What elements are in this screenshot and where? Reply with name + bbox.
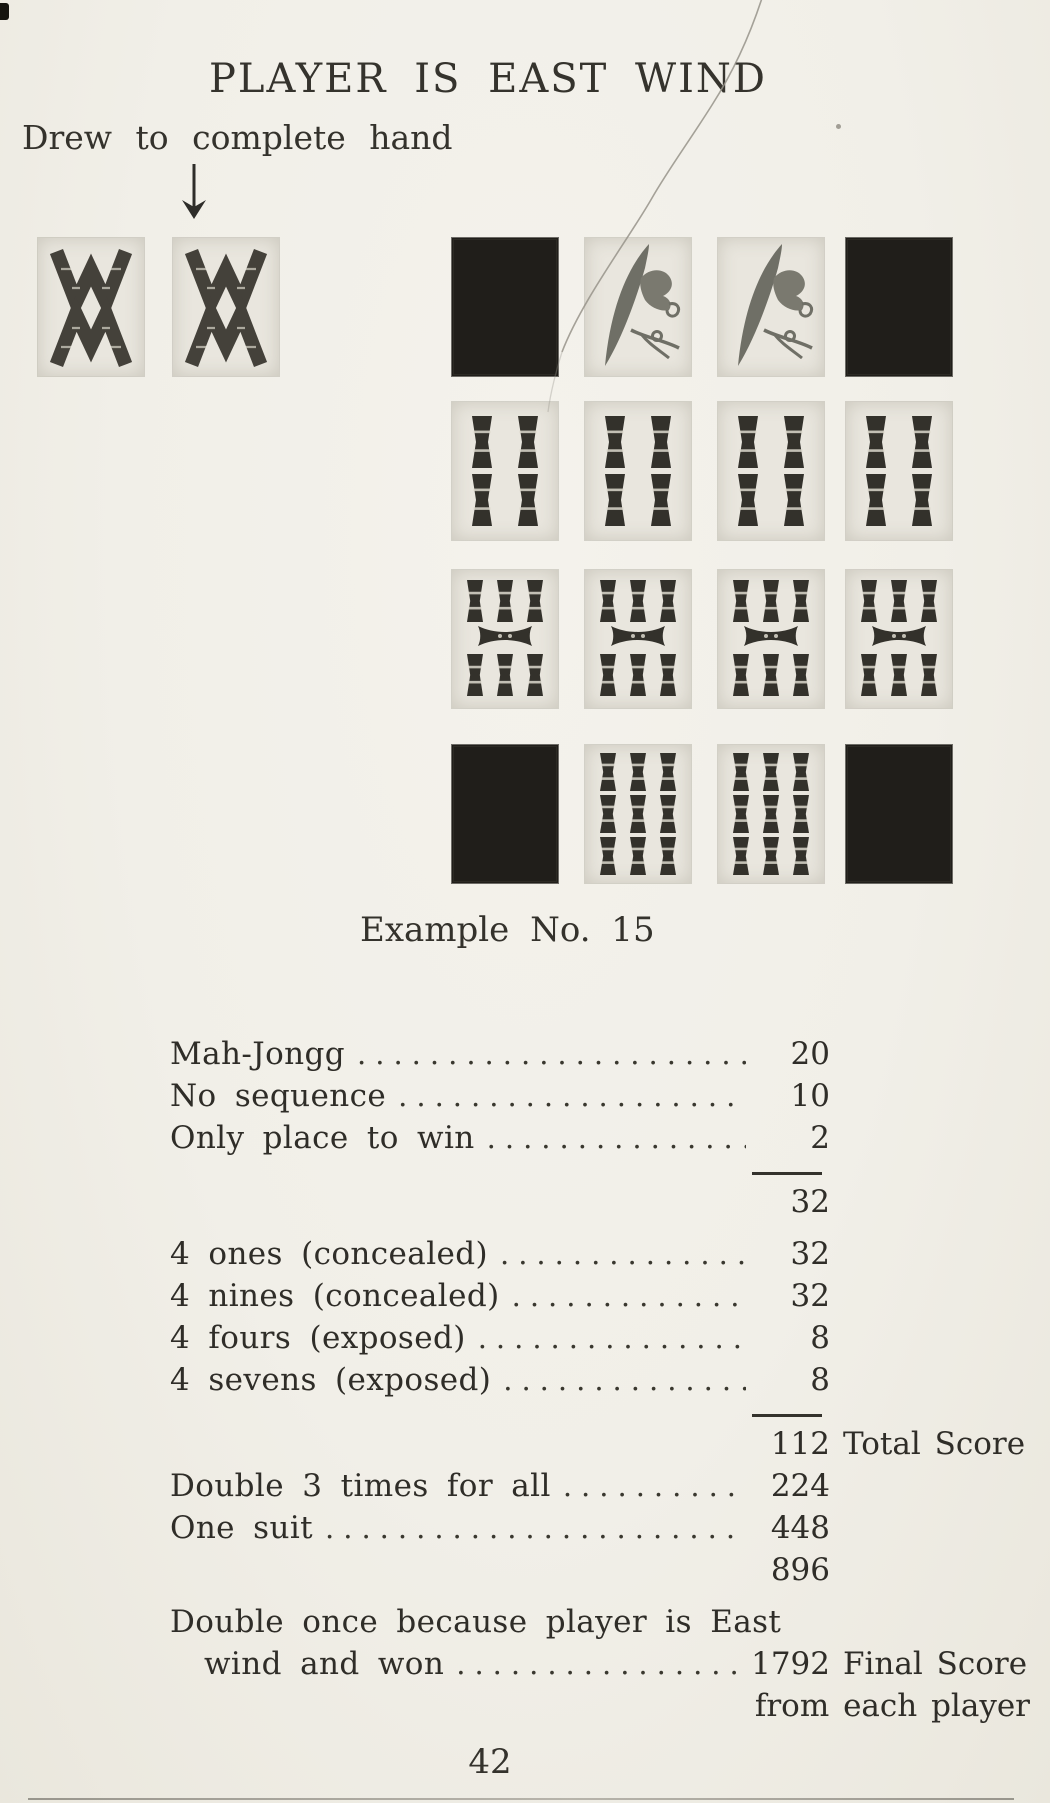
score-note: from each player — [746, 1688, 1030, 1724]
score-label: Double 3 times for all — [170, 1468, 551, 1504]
scan-speck — [836, 124, 841, 129]
tile-two-bamboo — [173, 238, 279, 376]
scoring-row-item: Double 3 times for all..................… — [170, 1468, 1030, 1510]
score-label: 4 sevens (exposed) — [170, 1362, 491, 1398]
dot-leader: ........................................… — [444, 1647, 746, 1681]
tile-seven-bamboo — [585, 570, 691, 708]
tile-two-bamboo — [38, 238, 144, 376]
tile-tile-back — [846, 745, 952, 883]
score-label: wind and won — [170, 1646, 444, 1682]
example-caption: Example No. 15 — [360, 910, 655, 950]
sum-rule — [752, 1414, 822, 1417]
tile-four-bamboo — [718, 402, 824, 540]
score-label: No sequence — [170, 1078, 386, 1114]
score-value: 32 — [746, 1236, 830, 1272]
scoring-row-item: wind and won............................… — [170, 1646, 1030, 1688]
tile-seven-bamboo — [846, 570, 952, 708]
score-label: 4 nines (concealed) — [170, 1278, 500, 1314]
tile-nine-bamboo — [585, 745, 691, 883]
score-value: 1792 — [746, 1646, 830, 1682]
dot-leader: ........................................… — [500, 1279, 746, 1313]
scoring-row-item: 4 ones (concealed)......................… — [170, 1236, 1030, 1278]
down-arrow-icon — [178, 162, 210, 220]
scoring-row-subtotal: 112Total Score — [170, 1426, 1030, 1468]
scoring-row-rule — [170, 1162, 1030, 1184]
scoring-row-rule — [170, 1404, 1030, 1426]
dot-leader: ........................................… — [488, 1237, 746, 1271]
scan-bottom-artifact — [28, 1798, 1014, 1800]
scoring-row-subtotal: 32 — [170, 1184, 1030, 1226]
scoring-table: Mah-Jongg...............................… — [170, 1036, 1030, 1730]
tile-four-bamboo — [585, 402, 691, 540]
tile-one-bamboo-bird — [585, 238, 691, 376]
score-subtotal: 32 — [746, 1184, 830, 1220]
scoring-row-item: No sequence.............................… — [170, 1078, 1030, 1120]
score-note: Final Score — [830, 1646, 1030, 1682]
score-value: 20 — [746, 1036, 830, 1072]
dot-leader: ........................................… — [313, 1511, 746, 1545]
scoring-row-item: 4 fours (exposed).......................… — [170, 1320, 1030, 1362]
dot-leader: ........................................… — [386, 1079, 746, 1113]
score-label: Double once because player is East — [170, 1604, 1030, 1640]
book-page: PLAYER IS EAST WIND Drew to complete han… — [0, 0, 1050, 1803]
score-subtotal: 896 — [746, 1552, 830, 1588]
dot-leader: ........................................… — [475, 1121, 746, 1155]
score-value: 448 — [746, 1510, 830, 1546]
score-subtotal: 112 — [746, 1426, 830, 1462]
score-value: 224 — [746, 1468, 830, 1504]
tile-seven-bamboo — [718, 570, 824, 708]
dot-leader: ........................................… — [551, 1469, 746, 1503]
score-value: 8 — [746, 1362, 830, 1398]
score-label: Only place to win — [170, 1120, 475, 1156]
scan-corner-mark — [0, 3, 9, 20]
scoring-row-item: 4 nines (concealed).....................… — [170, 1278, 1030, 1320]
tile-one-bamboo-bird — [718, 238, 824, 376]
score-value: 32 — [746, 1278, 830, 1314]
tile-four-bamboo — [846, 402, 952, 540]
tile-four-bamboo — [452, 402, 558, 540]
score-label: 4 ones (concealed) — [170, 1236, 488, 1272]
sum-rule — [752, 1172, 822, 1175]
tile-tile-back — [846, 238, 952, 376]
dot-leader: ........................................… — [345, 1037, 746, 1071]
scoring-row-item: Mah-Jongg...............................… — [170, 1036, 1030, 1078]
tile-tile-back — [452, 745, 558, 883]
score-value: 8 — [746, 1320, 830, 1356]
scoring-row-subtotal: 896 — [170, 1552, 1030, 1594]
page-title: PLAYER IS EAST WIND — [188, 56, 788, 102]
dot-leader: ........................................… — [466, 1321, 746, 1355]
tile-seven-bamboo — [452, 570, 558, 708]
drawn-tile-annotation: Drew to complete hand — [22, 118, 453, 157]
scoring-row-noteonly: from each player — [170, 1688, 1030, 1730]
score-note: Total Score — [830, 1426, 1030, 1462]
tile-nine-bamboo — [718, 745, 824, 883]
dot-leader: ........................................… — [491, 1363, 746, 1397]
scoring-row-item: One suit................................… — [170, 1510, 1030, 1552]
score-label: One suit — [170, 1510, 313, 1546]
score-value: 2 — [746, 1120, 830, 1156]
tile-tile-back — [452, 238, 558, 376]
score-value: 10 — [746, 1078, 830, 1114]
score-label: Mah-Jongg — [170, 1036, 345, 1072]
score-label: 4 fours (exposed) — [170, 1320, 466, 1356]
scoring-row-text: Double once because player is East — [170, 1604, 1030, 1646]
page-number: 42 — [430, 1742, 550, 1782]
